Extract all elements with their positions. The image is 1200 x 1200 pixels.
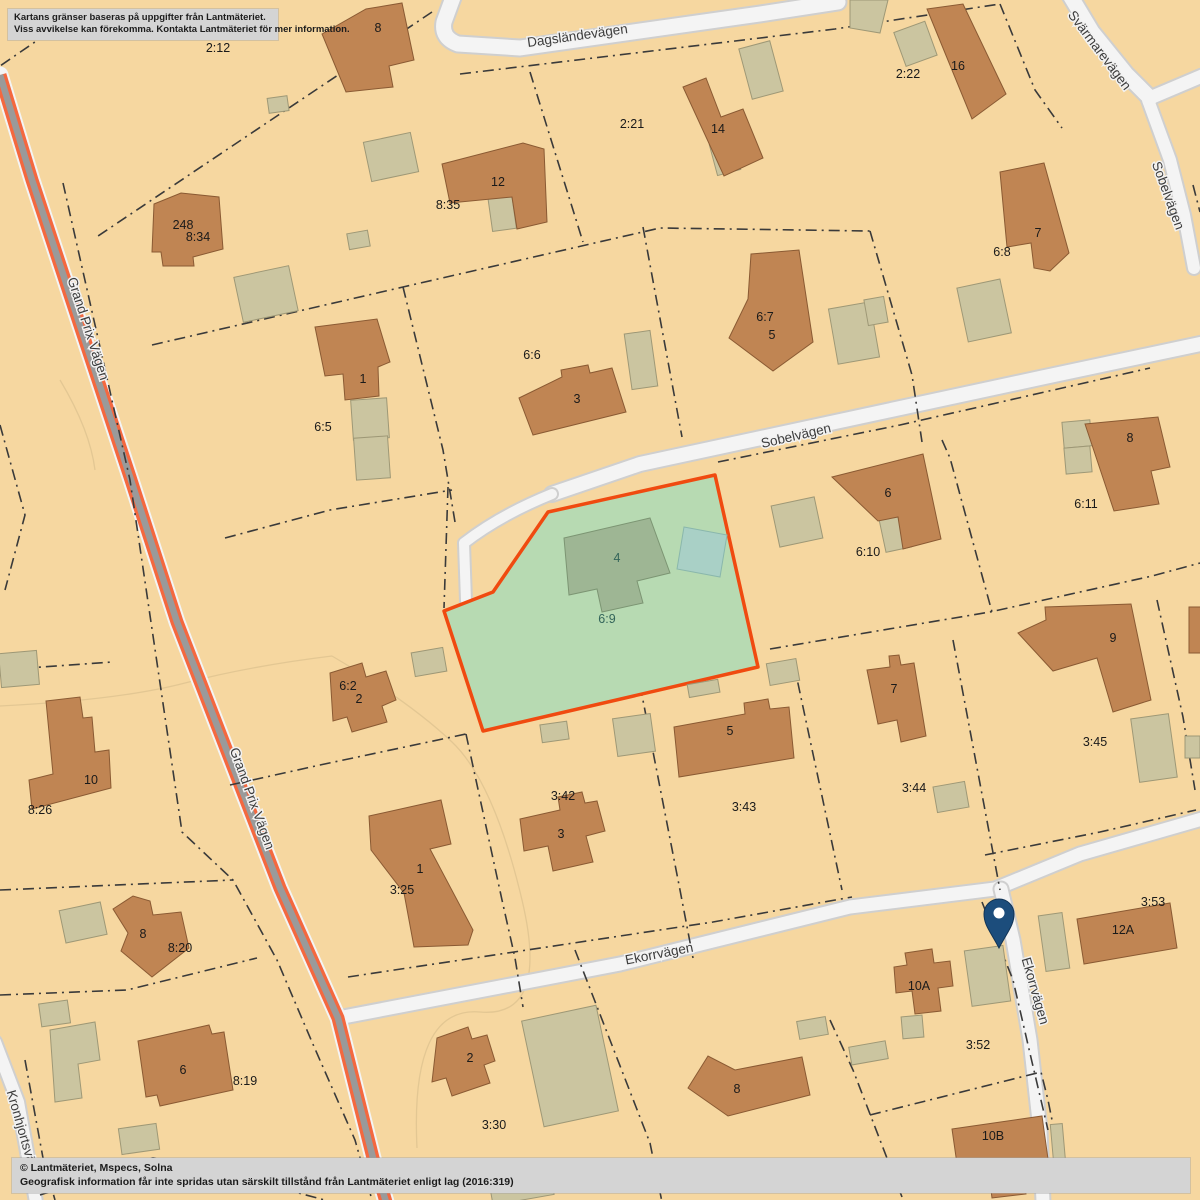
parcel-label-highlighted: 6:9 (598, 612, 615, 626)
building-number-label: 14 (711, 122, 725, 136)
building-number-label: 12 (491, 175, 505, 189)
copyright-line: Geografisk information får inte spridas … (20, 1176, 1182, 1190)
outbuilding-footprint (901, 1015, 924, 1039)
map-view[interactable]: Dagsländevägen Svärmarevägen Sobelvägen … (0, 0, 1200, 1200)
parcel-label: 6:11 (1074, 497, 1097, 511)
disclaimer-line: Viss avvikelse kan förekomma. Kontakta L… (14, 24, 272, 36)
building-number-label: 16 (951, 59, 965, 73)
building-number-label: 8 (375, 21, 382, 35)
building-number-label: 8 (140, 927, 147, 941)
parcel-label: 3:30 (482, 1118, 506, 1132)
building-number-label-highlighted: 4 (614, 551, 621, 565)
parcel-label: 6:2 (339, 679, 356, 693)
map-canvas[interactable]: Dagsländevägen Svärmarevägen Sobelvägen … (0, 0, 1200, 1200)
outbuilding-footprint (354, 436, 391, 480)
building-number-label: 10 (84, 773, 98, 787)
outbuilding-footprint (347, 230, 370, 249)
parcel-label: 8:35 (436, 198, 460, 212)
building-number-label: 7 (1035, 226, 1042, 240)
building-number-label: 7 (891, 682, 898, 696)
building-number-label: 6 (885, 486, 892, 500)
copyright-line: © Lantmäteriet, Mspecs, Solna (20, 1162, 1182, 1176)
outbuilding-footprint (39, 1000, 71, 1027)
outbuilding-footprint (1185, 736, 1200, 758)
parcel-label: 6:8 (993, 245, 1010, 259)
building-number-label: 1 (417, 862, 424, 876)
building-number-label: 2 (467, 1051, 474, 1065)
parcel-label: 3:44 (902, 781, 926, 795)
parcel-label: 3:25 (390, 883, 414, 897)
building-number-label: 2 (356, 692, 363, 706)
building-number-label: 10A (908, 979, 931, 993)
outbuilding-footprint (933, 781, 969, 812)
parcel-label: 8:26 (28, 803, 52, 817)
building-number-label: 5 (769, 328, 776, 342)
outbuilding-footprint (964, 945, 1010, 1006)
building-footprint (1189, 607, 1200, 653)
outbuilding-footprint (1064, 446, 1092, 474)
outbuilding-footprint (771, 497, 823, 547)
building-number-label: 6 (180, 1063, 187, 1077)
building-number-label: 8 (1127, 431, 1134, 445)
parcel-label: 3:42 (551, 789, 575, 803)
building-number-label: 12A (1112, 923, 1135, 937)
map-pin-hole (994, 908, 1005, 919)
pool (677, 527, 727, 577)
building-number-label: 248 (173, 218, 194, 232)
outbuilding-footprint (267, 96, 289, 114)
building-number-label: 1 (360, 372, 367, 386)
parcel-label: 3:43 (732, 800, 756, 814)
outbuilding-footprint (118, 1123, 159, 1154)
parcel-label: 2:21 (620, 117, 644, 131)
outbuilding-footprint (351, 398, 390, 440)
outbuilding-footprint (0, 650, 39, 687)
building-number-label: 10B (982, 1129, 1004, 1143)
outbuilding-footprint (613, 714, 656, 757)
parcel-label: 3:53 (1141, 895, 1165, 909)
outbuilding-footprint (411, 647, 447, 676)
building-number-label: 8 (734, 1082, 741, 1096)
outbuilding-footprint (864, 296, 888, 325)
outbuilding-footprint (540, 721, 569, 743)
disclaimer-line: Kartans gränser baseras på uppgifter frå… (14, 12, 272, 24)
parcel-label: 3:45 (1083, 735, 1107, 749)
map-disclaimer-top: Kartans gränser baseras på uppgifter frå… (8, 9, 278, 40)
building-number-label: 5 (727, 724, 734, 738)
parcel-label: 8:20 (168, 941, 192, 955)
building-number-label: 3 (558, 827, 565, 841)
parcel-label: 8:34 (186, 230, 210, 244)
building-number-label: 9 (1110, 631, 1117, 645)
building-number-label: 3 (574, 392, 581, 406)
parcel-label: 6:6 (523, 348, 540, 362)
parcel-label: 3:52 (966, 1038, 990, 1052)
parcel-label: 2:22 (896, 67, 920, 81)
map-copyright-bottom: © Lantmäteriet, Mspecs, Solna Geografisk… (12, 1158, 1190, 1193)
parcel-label: 6:5 (314, 420, 331, 434)
parcel-label: 6:7 (756, 310, 773, 324)
parcel-label: 8:19 (233, 1074, 257, 1088)
parcel-label: 6:10 (856, 545, 880, 559)
outbuilding-footprint (766, 659, 799, 686)
outbuilding-footprint (1131, 714, 1178, 783)
parcel-label: 2:12 (206, 41, 230, 55)
